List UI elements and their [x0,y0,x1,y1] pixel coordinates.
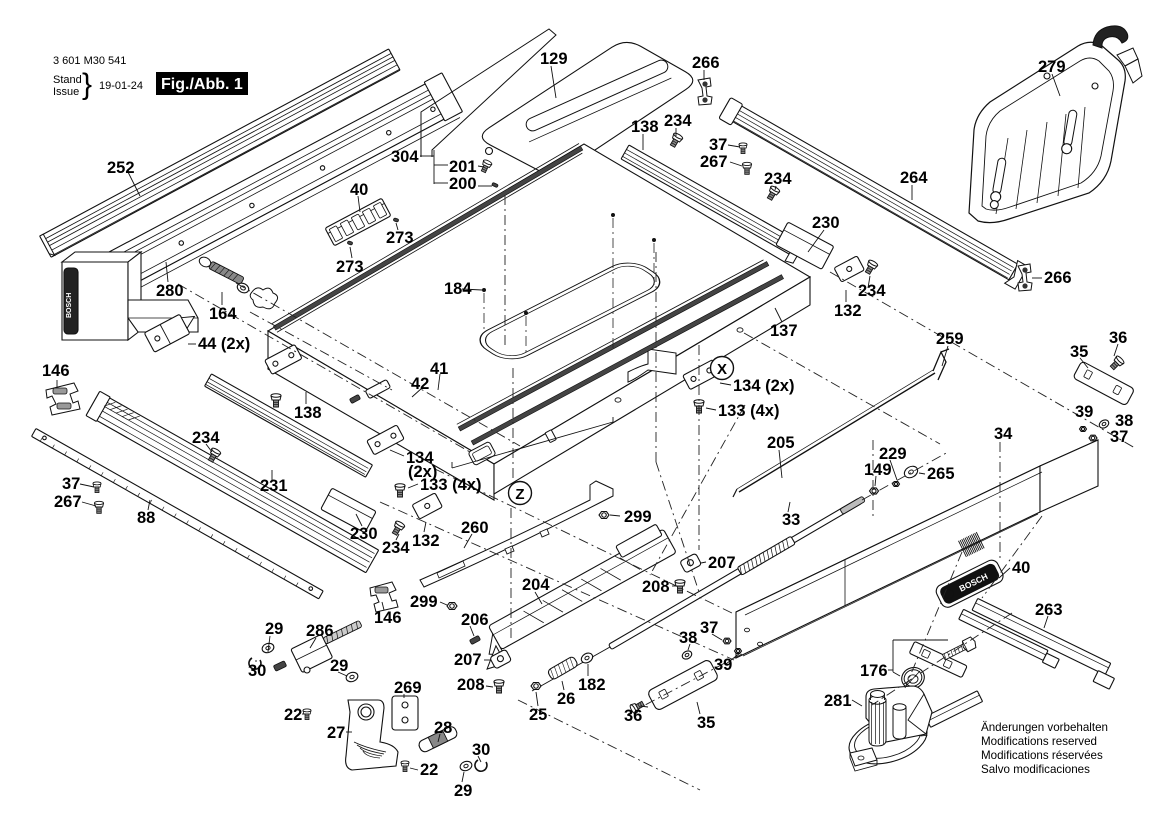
svg-text:266: 266 [692,54,720,72]
svg-text:200: 200 [449,175,477,193]
svg-text:137: 137 [770,322,798,340]
svg-text:206: 206 [461,611,489,629]
svg-text:273: 273 [336,258,364,276]
svg-text:207: 207 [708,554,736,572]
svg-text:35: 35 [697,714,715,732]
svg-text:37: 37 [700,619,718,637]
svg-text:146: 146 [42,362,70,380]
svg-text:182: 182 [578,676,606,694]
svg-text:281: 281 [824,692,852,710]
svg-text:39: 39 [1075,403,1093,421]
svg-text:208: 208 [457,676,485,694]
svg-text:36: 36 [624,707,642,725]
svg-text:299: 299 [410,593,438,611]
svg-text:205: 205 [767,434,795,452]
svg-text:146: 146 [374,609,402,627]
svg-text:234: 234 [858,282,886,300]
svg-text:267: 267 [700,153,728,171]
svg-text:280: 280 [156,282,184,300]
svg-text:201: 201 [449,158,477,176]
svg-text:263: 263 [1035,601,1063,619]
svg-text:40: 40 [1012,559,1030,577]
svg-text:Fig./Abb. 1: Fig./Abb. 1 [161,76,243,93]
svg-text:42: 42 [411,375,429,393]
svg-text:Stand: Stand [53,74,82,86]
svg-text:129: 129 [540,50,568,68]
svg-text:35: 35 [1070,343,1088,361]
svg-text:176: 176 [860,662,888,680]
svg-text:230: 230 [350,525,378,543]
svg-text:273: 273 [386,229,414,247]
svg-text:259: 259 [936,330,964,348]
svg-text:Z: Z [515,486,524,503]
svg-text:133 (4x): 133 (4x) [718,402,779,420]
svg-text:88: 88 [137,509,155,527]
svg-text:28: 28 [434,719,452,737]
svg-text:39: 39 [714,656,732,674]
svg-text:260: 260 [461,519,489,537]
svg-text:33: 33 [782,511,800,529]
svg-text:286: 286 [306,622,334,640]
svg-text:}: } [82,68,92,101]
svg-text:279: 279 [1038,58,1066,76]
svg-text:149: 149 [864,461,892,479]
svg-text:Änderungen vorbehalten: Änderungen vorbehalten [981,721,1108,734]
svg-text:207: 207 [454,651,482,669]
svg-text:234: 234 [192,429,220,447]
svg-text:264: 264 [900,169,928,187]
svg-text:266: 266 [1044,269,1072,287]
svg-text:25: 25 [529,706,547,724]
svg-text:BOSCH: BOSCH [66,293,73,318]
svg-text:134 (2x): 134 (2x) [733,377,794,395]
svg-text:234: 234 [764,170,792,188]
svg-text:164: 164 [209,305,237,323]
svg-text:44 (2x): 44 (2x) [198,335,250,353]
svg-text:22: 22 [284,706,302,724]
svg-text:184: 184 [444,280,472,298]
svg-text:204: 204 [522,576,550,594]
svg-text:269: 269 [394,679,422,697]
svg-text:231: 231 [260,477,288,495]
svg-text:37: 37 [1110,428,1128,446]
svg-text:230: 230 [812,214,840,232]
svg-text:267: 267 [54,493,82,511]
svg-text:29: 29 [265,620,283,638]
svg-text:252: 252 [107,159,135,177]
svg-text:37: 37 [709,136,727,154]
svg-text:40: 40 [350,181,368,199]
svg-text:26: 26 [557,690,575,708]
svg-text:34: 34 [994,425,1013,443]
svg-text:19-01-24: 19-01-24 [99,80,143,92]
svg-text:22: 22 [420,761,438,779]
svg-text:Modifications réservées: Modifications réservées [981,749,1103,762]
svg-text:132: 132 [834,302,862,320]
svg-text:Modifications reserved: Modifications reserved [981,735,1097,748]
svg-text:38: 38 [679,629,697,647]
svg-text:37: 37 [62,475,80,493]
svg-text:138: 138 [294,404,322,422]
svg-text:138: 138 [631,118,659,136]
svg-text:29: 29 [330,657,348,675]
svg-text:3 601 M30 541: 3 601 M30 541 [53,55,126,67]
svg-text:36: 36 [1109,329,1127,347]
svg-text:30: 30 [248,662,266,680]
svg-text:41: 41 [430,360,448,378]
svg-text:234: 234 [664,112,692,130]
svg-text:304: 304 [391,148,419,166]
svg-text:Issue: Issue [53,86,79,98]
svg-text:208: 208 [642,578,670,596]
svg-text:29: 29 [454,782,472,800]
svg-text:30: 30 [472,741,490,759]
svg-text:133 (4x): 133 (4x) [420,476,481,494]
svg-text:132: 132 [412,532,440,550]
svg-text:234: 234 [382,539,410,557]
svg-text:27: 27 [327,724,345,742]
svg-text:299: 299 [624,508,652,526]
svg-text:X: X [717,361,727,378]
svg-text:265: 265 [927,465,955,483]
svg-text:Salvo modificaciones: Salvo modificaciones [981,763,1090,776]
